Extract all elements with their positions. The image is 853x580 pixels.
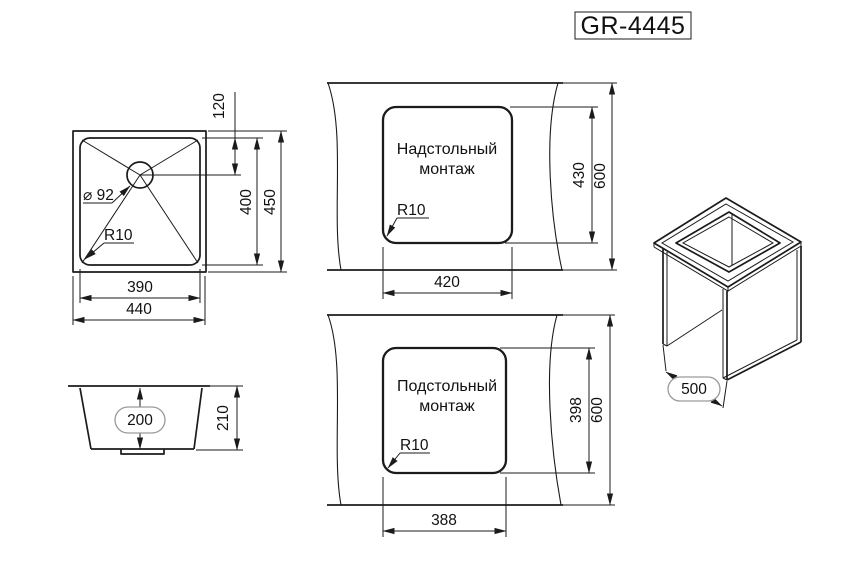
dim-bowl-height: 200 (127, 412, 153, 429)
dim-overall-width: 440 (126, 301, 152, 318)
iso-view: 500 (654, 198, 801, 408)
overmount-view: Надстольный монтаж R10 420 430 600 (327, 83, 617, 299)
model-number: GR-4445 (581, 12, 686, 40)
dim-corner-radius-undermount: R10 (400, 437, 429, 454)
dim-bowl-depth: 400 (238, 189, 255, 215)
dim-corner-radius-overmount: R10 (397, 202, 426, 219)
undermount-view: Подстольный монтаж R10 388 398 600 (327, 315, 615, 537)
dim-overall-height: 210 (215, 405, 232, 431)
dim-overmount-cutout-depth: 430 (571, 162, 588, 188)
sink-dimension-drawing: 120 400 450 390 440 ⌀ 92 R10 200 210 Над… (0, 0, 853, 580)
dim-overmount-counter-depth: 600 (592, 163, 609, 189)
dim-overmount-cutout-width: 420 (434, 274, 460, 291)
overmount-label-line2: монтаж (419, 161, 475, 178)
undermount-label-line1: Подстольный (397, 378, 497, 395)
technical-drawing-canvas: 120 400 450 390 440 ⌀ 92 R10 200 210 Над… (0, 0, 853, 580)
model-label-box: GR-4445 (575, 12, 691, 40)
dim-undermount-counter-depth: 600 (589, 397, 606, 423)
dim-bowl-width: 390 (127, 279, 153, 296)
side-view: 200 210 (68, 386, 243, 454)
overmount-label-line1: Надстольный (397, 141, 497, 158)
top-view: 120 400 450 390 440 ⌀ 92 R10 (73, 92, 287, 325)
dim-undermount-cutout-depth: 398 (568, 397, 585, 423)
dim-undermount-cutout-width: 388 (431, 512, 457, 529)
dim-overall-depth: 450 (262, 189, 279, 215)
dim-corner-radius-top-view: R10 (104, 227, 133, 244)
dim-drain-offset: 120 (211, 93, 228, 119)
dim-cabinet-width: 500 (681, 381, 707, 398)
dim-drain-diameter: ⌀ 92 (83, 187, 114, 204)
undermount-label-line2: монтаж (419, 398, 475, 415)
